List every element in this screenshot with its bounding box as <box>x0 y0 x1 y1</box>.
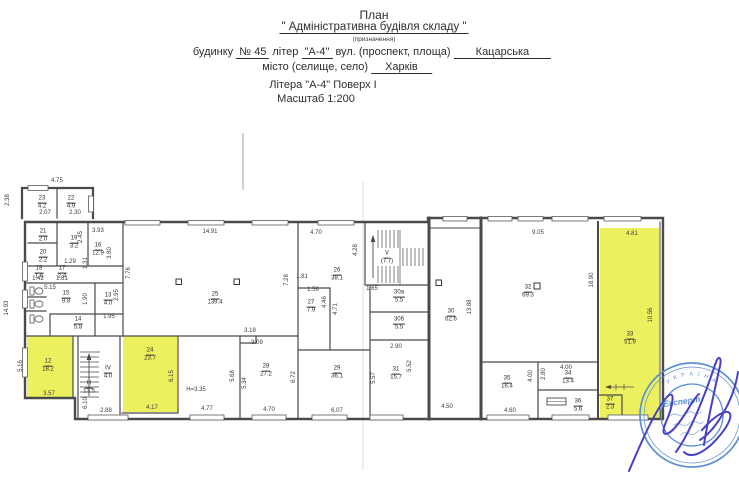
dimension-label: 6.07 <box>331 408 343 414</box>
dimension-label: 1.65 <box>366 286 378 292</box>
room-label-12: 1218.2 <box>42 359 54 374</box>
dimension-label: 2.90 <box>390 344 402 350</box>
dimension-label: 1.81 <box>56 276 68 282</box>
dimension-label: 7.28 <box>284 274 290 286</box>
dimension-label: 1.29 <box>64 259 76 265</box>
room-label-30: 3062.6 <box>445 309 457 324</box>
dimension-label: 3.57 <box>43 391 55 397</box>
room-label-36: 365.6 <box>574 399 583 414</box>
liter-floor-line: Літера "А-4" Поверх I <box>269 79 376 91</box>
dimension-label: 6.15 <box>169 370 175 382</box>
columns <box>176 279 540 289</box>
stair-label-iv: IV4.0 <box>104 366 112 381</box>
dimension-label: 14.91 <box>202 229 217 235</box>
dimension-label: 5.34 <box>242 377 248 389</box>
dimension-label: 1.90 <box>83 293 89 305</box>
dimension-label: 1.42 <box>32 276 44 282</box>
dimension-label: 4.60 <box>504 408 516 414</box>
dimension-label: 4.00 <box>528 370 534 382</box>
room-label-33: 3351.9 <box>624 332 636 347</box>
dimension-label: 6.10 <box>83 397 89 409</box>
building-number: № 45 <box>236 46 269 59</box>
room-label-26: 2638.1 <box>331 268 343 283</box>
dimension-label: 18.90 <box>589 272 595 287</box>
dimension-label: 14.93 <box>4 300 10 315</box>
highlight-room-33 <box>600 228 659 418</box>
dimension-label: 4.28 <box>353 244 359 256</box>
room-label-31: 3115.7 <box>390 367 402 382</box>
dimension-label: 5.15 <box>44 285 56 291</box>
dimension-label: 2.45 <box>78 231 84 243</box>
dimension-label: 2.95 <box>114 289 120 301</box>
dimension-label: 4.81 <box>626 231 638 237</box>
room-label-27: 277.9 <box>307 300 316 315</box>
dimension-label: 4.70 <box>310 230 322 236</box>
dimension-label: 2.80 <box>541 368 547 380</box>
ceiling-height-note: Н=3.35 <box>186 387 206 393</box>
dimension-label: 5.52 <box>407 360 413 372</box>
room-label-14: 145.8 <box>74 317 83 332</box>
room-label-30a: 30а5.5 <box>393 290 405 305</box>
dimension-label: 6.72 <box>291 371 297 383</box>
scanned-floor-plan-page: · У К Р А Ї Н А · · · · · · · · · · · · … <box>0 0 739 480</box>
dimension-label: 4.70 <box>263 407 275 413</box>
room-label-23: 234.2 <box>38 196 47 211</box>
dimension-label: 4.71 <box>333 303 339 315</box>
dimension-label: 5.16 <box>18 360 24 372</box>
room-label-34: 3413.4 <box>562 371 574 386</box>
dimension-label: 1.56 <box>307 287 319 293</box>
stair-label-v: V(7.7) <box>381 251 393 266</box>
room-label-29: 2936.1 <box>331 366 343 381</box>
dimension-label: 4.50 <box>441 404 453 410</box>
dimension-label: 4.77 <box>201 406 213 412</box>
dimension-label: 3.80 <box>107 247 113 259</box>
page-title: План <box>360 8 389 22</box>
dimension-label: 4.46 <box>322 296 328 308</box>
dimension-label: 4.00 <box>560 365 572 371</box>
dimension-label: 5.68 <box>230 370 236 382</box>
dimension-label: 2.30 <box>69 210 81 216</box>
city-name: Харків <box>371 61 432 74</box>
dimension-label: 2.38 <box>5 194 11 206</box>
building-purpose: " Адміністративна будівля складу " <box>279 21 468 33</box>
room-label-21: 212.0 <box>39 229 48 244</box>
dimension-label: 5.57 <box>371 372 377 384</box>
room-label-25: 25139.4 <box>207 292 222 307</box>
city-line: місто (селище, село) Харків <box>262 61 432 73</box>
dimension-label: 10.56 <box>648 307 654 322</box>
dimension-label: 2.07 <box>39 210 51 216</box>
dimension-label: 13.88 <box>467 299 473 314</box>
room-label-32: 3269.3 <box>522 285 534 300</box>
stair-label-iii: III13.5 <box>83 381 95 396</box>
dimension-label: 7.76 <box>126 267 132 279</box>
staircase-v-icon <box>371 230 423 285</box>
dimension-label: 4.17 <box>146 405 158 411</box>
room-label-16: 1612.9 <box>92 243 104 258</box>
purpose-note: (призначення) <box>353 36 396 43</box>
scale-line: Масштаб 1:200 <box>277 93 355 105</box>
address-line: будинку № 45 літер "А-4" вул. (проспект,… <box>193 46 551 58</box>
room-label-24: 2423.7 <box>144 348 156 363</box>
room-label-30b: 30б5.5 <box>393 317 405 332</box>
dimension-label: 4.75 <box>51 178 63 184</box>
dimension-label: 1.81 <box>296 274 308 280</box>
dimension-label: 3.93 <box>92 228 104 234</box>
dimension-label: 1.95 <box>103 314 115 320</box>
dimension-label: 3.18 <box>244 328 256 334</box>
room-label-37: 372.3 <box>606 397 615 412</box>
liter-value: "А-4" <box>301 46 332 59</box>
toilet-icons <box>30 287 43 323</box>
dimension-label: 3.09 <box>251 340 263 346</box>
street-name: Кацарська <box>454 46 551 59</box>
room-label-28: 2827.2 <box>260 364 272 379</box>
room-label-20: 202.2 <box>39 250 48 265</box>
dimension-label: 2.88 <box>100 408 112 414</box>
room-label-22: 224.9 <box>67 196 76 211</box>
dimension-label: 1.31 <box>83 257 89 269</box>
room-label-35: 3516.4 <box>501 376 513 391</box>
dimension-label: 9.05 <box>532 230 544 236</box>
room-label-13: 134.0 <box>104 293 113 308</box>
room-label-15: 159.8 <box>62 291 71 306</box>
